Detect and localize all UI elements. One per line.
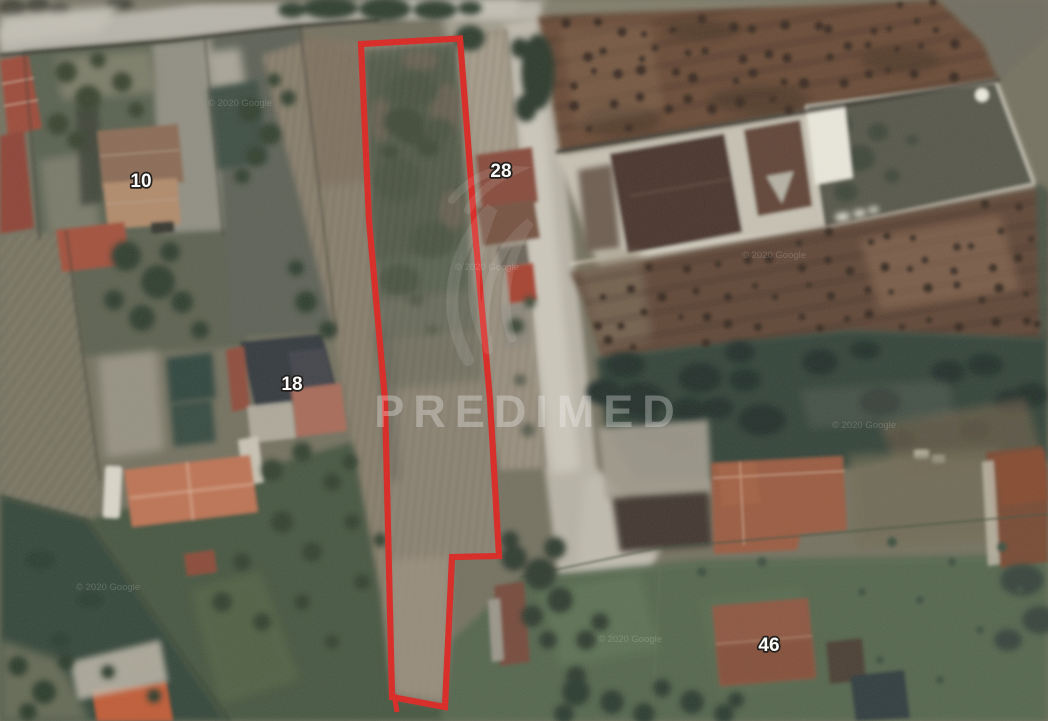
svg-text:© 2020 Google: © 2020 Google: [455, 262, 519, 273]
svg-text:46: 46: [758, 635, 779, 656]
svg-text:© 2020 Google: © 2020 Google: [598, 634, 662, 645]
svg-text:PREDIMED: PREDIMED: [374, 386, 684, 437]
svg-text:© 2020 Google: © 2020 Google: [742, 250, 806, 261]
svg-text:© 2020 Google: © 2020 Google: [832, 420, 896, 431]
svg-text:28: 28: [490, 161, 511, 182]
svg-text:© 2020 Google: © 2020 Google: [208, 98, 272, 109]
svg-text:© 2020 Google: © 2020 Google: [76, 582, 140, 593]
svg-text:10: 10: [130, 171, 151, 192]
svg-text:18: 18: [281, 374, 302, 395]
